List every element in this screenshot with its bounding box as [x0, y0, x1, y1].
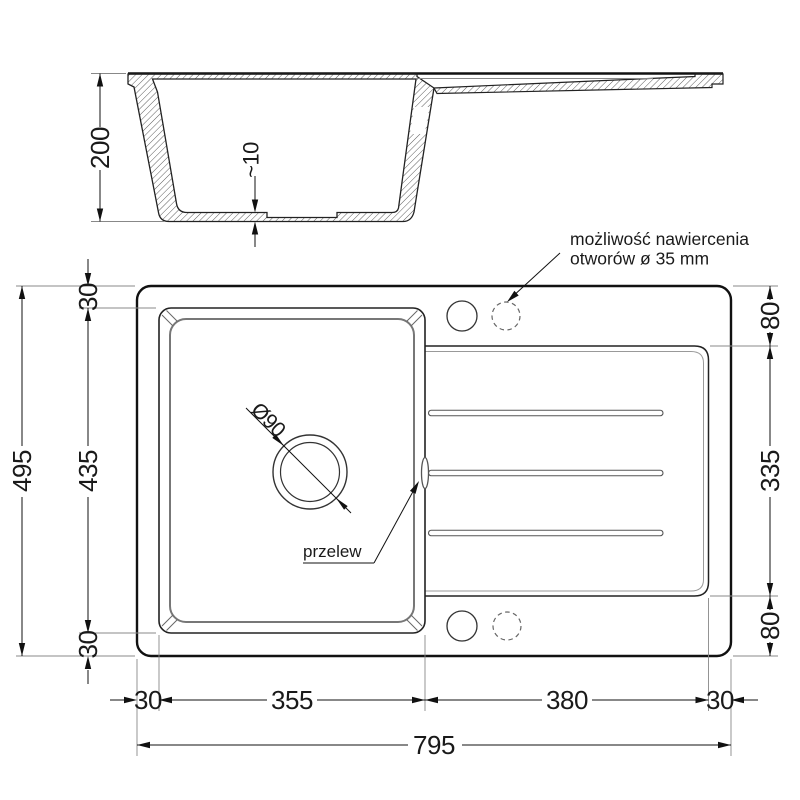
- sink-technical-drawing: 200 ~10: [0, 0, 800, 800]
- dim-bowl-length-value: 355: [271, 685, 313, 715]
- tap-hole-top: [447, 301, 477, 331]
- section-drainer-strip: [434, 74, 723, 94]
- drainer-rib: [429, 410, 664, 416]
- arrow-icon: [425, 697, 438, 703]
- dim-margin-bottom-value: 30: [73, 631, 103, 659]
- dim-drainer-top-offset: 80: [755, 286, 785, 346]
- dim-margin-top: 30: [73, 259, 103, 311]
- arrow-icon: [137, 742, 150, 748]
- arrow-icon: [767, 596, 773, 609]
- section-bowl-body: [128, 74, 434, 222]
- dim-margin-right: 30: [706, 685, 758, 715]
- arrow-icon: [767, 333, 773, 346]
- arrow-icon: [767, 583, 773, 596]
- dim-margin-top-value: 30: [73, 283, 103, 311]
- dim-bottom-step: ~10: [239, 142, 264, 247]
- arrow-icon: [252, 222, 258, 235]
- dim-margin-right-value: 30: [706, 685, 734, 715]
- dim-drainer-bottom-offset: 80: [755, 596, 785, 656]
- drainer-rib: [429, 530, 664, 536]
- arrow-icon: [412, 697, 425, 703]
- drainer-rib: [429, 470, 664, 476]
- drawing-page: 200 ~10: [0, 0, 800, 800]
- overflow-label: przelew: [303, 542, 362, 561]
- dim-overall-length-value: 795: [413, 730, 455, 760]
- arrow-icon: [252, 200, 258, 213]
- dim-drainer-length-value: 380: [546, 685, 588, 715]
- dim-drainer-bottom-value: 80: [755, 612, 785, 640]
- dim-depth-value: 200: [85, 127, 115, 169]
- arrow-icon: [19, 286, 25, 299]
- dim-bowl-length: 355: [159, 685, 425, 715]
- dim-bowl-width: 435: [73, 308, 103, 633]
- drilling-note-line2: otworów ø 35 mm: [570, 249, 709, 269]
- dim-overall-width-value: 495: [7, 450, 37, 492]
- arrow-icon: [767, 346, 773, 359]
- dim-margin-left-value: 30: [134, 685, 162, 715]
- section-view: 200 ~10: [85, 74, 723, 248]
- drilling-note-line1: możliwość nawiercenia: [570, 229, 749, 249]
- arrow-icon: [97, 209, 103, 222]
- dim-drainer-length: 380: [425, 685, 709, 715]
- dim-margin-bottom: 30: [73, 631, 103, 684]
- dim-drainer-top-value: 80: [755, 302, 785, 330]
- dim-overall-length: 795: [137, 730, 731, 760]
- arrow-icon: [767, 643, 773, 656]
- plan-view: Ø90 przelew możliwość nawiercenia otworó…: [137, 229, 749, 656]
- dim-overall-width: 495: [7, 286, 37, 656]
- dim-bottom-step-value: ~10: [239, 142, 264, 178]
- dim-bowl-width-value: 435: [73, 450, 103, 492]
- arrow-icon: [767, 286, 773, 299]
- arrow-icon: [97, 74, 103, 87]
- arrow-icon: [718, 742, 731, 748]
- left-dimensions: 495 435 30 30: [7, 259, 156, 684]
- tap-hole-bottom: [447, 611, 477, 641]
- arrow-icon: [19, 643, 25, 656]
- dim-drainer-height-value: 335: [755, 450, 785, 492]
- dim-drainer-height: 335: [755, 346, 785, 596]
- overflow-slot: [422, 458, 429, 489]
- dim-margin-left: 30: [110, 685, 162, 715]
